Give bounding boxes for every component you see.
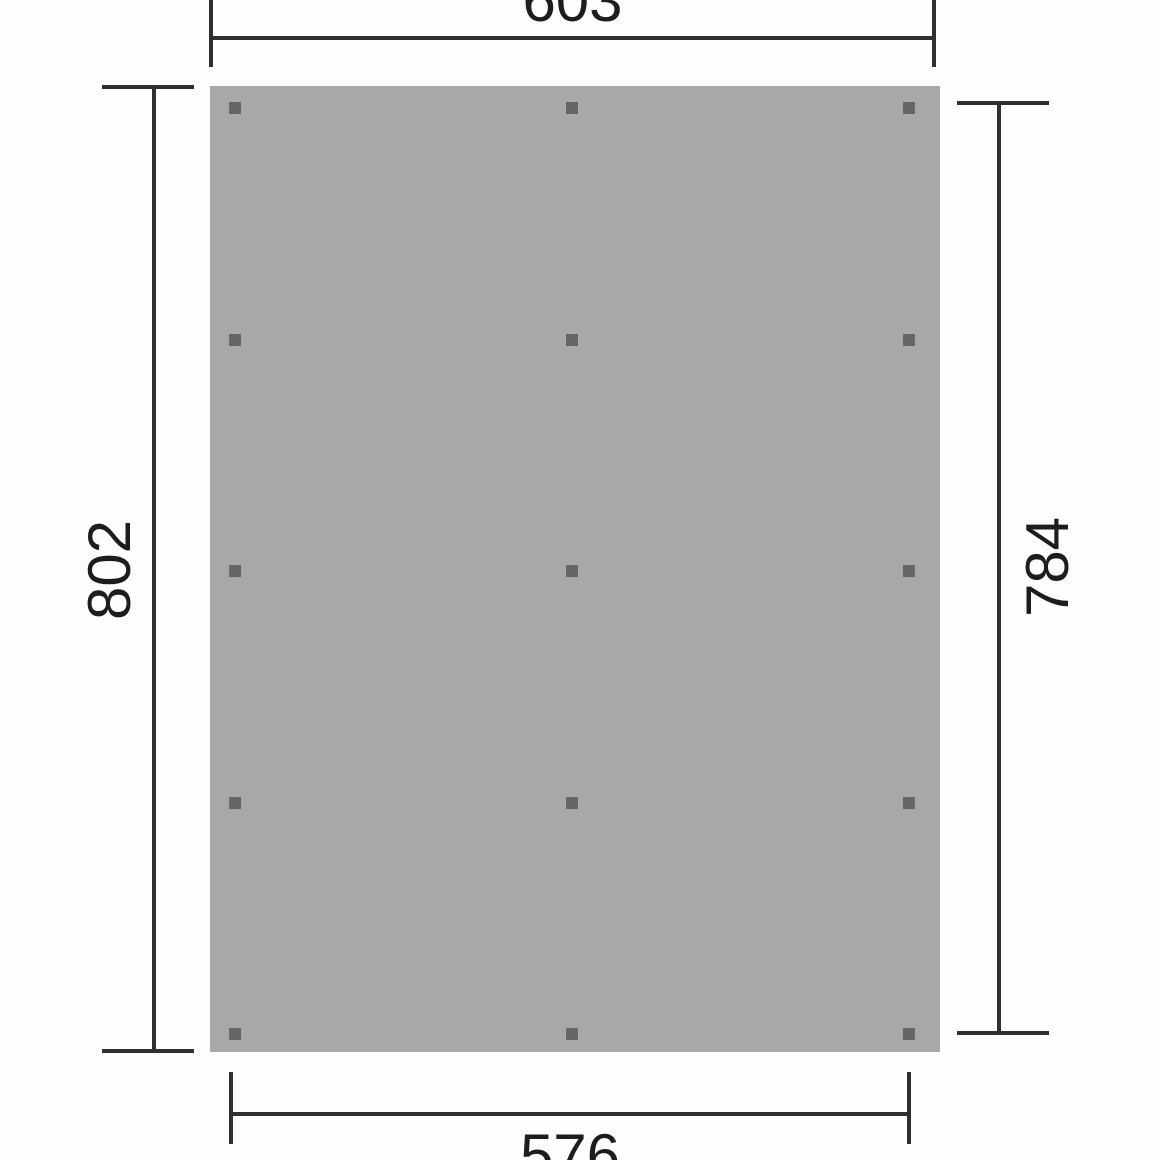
dimension-left-cap-bottom xyxy=(102,1049,194,1053)
dimension-left-cap-top xyxy=(102,85,194,89)
dimension-top-line xyxy=(211,36,934,40)
roof-post xyxy=(903,1028,915,1040)
roof-post xyxy=(566,565,578,577)
roof-post xyxy=(903,102,915,114)
dimension-drawing: 603 576 802 784 xyxy=(0,0,1160,1160)
roof-post xyxy=(566,334,578,346)
dimension-right-line xyxy=(997,103,1001,1033)
roof-post xyxy=(566,102,578,114)
dimension-left-value: 802 xyxy=(80,520,140,620)
dimension-left-line xyxy=(152,87,156,1051)
dimension-bottom-value: 576 xyxy=(231,1126,909,1160)
roof-post xyxy=(903,797,915,809)
posts-layer xyxy=(210,86,940,1052)
roof-post xyxy=(903,334,915,346)
dimension-right-cap-bottom xyxy=(957,1031,1049,1035)
dimension-right-cap-top xyxy=(957,101,1049,105)
roof-post xyxy=(229,102,241,114)
roof-post xyxy=(566,797,578,809)
roof-post xyxy=(903,565,915,577)
roof-post xyxy=(229,565,241,577)
roof-post xyxy=(566,1028,578,1040)
roof-post xyxy=(229,797,241,809)
dimension-top-value: 603 xyxy=(211,0,934,31)
roof-post xyxy=(229,334,241,346)
dimension-right-value: 784 xyxy=(1018,517,1078,617)
roof-post xyxy=(229,1028,241,1040)
dimension-bottom-line xyxy=(231,1112,909,1116)
roof-panel xyxy=(210,86,940,1052)
